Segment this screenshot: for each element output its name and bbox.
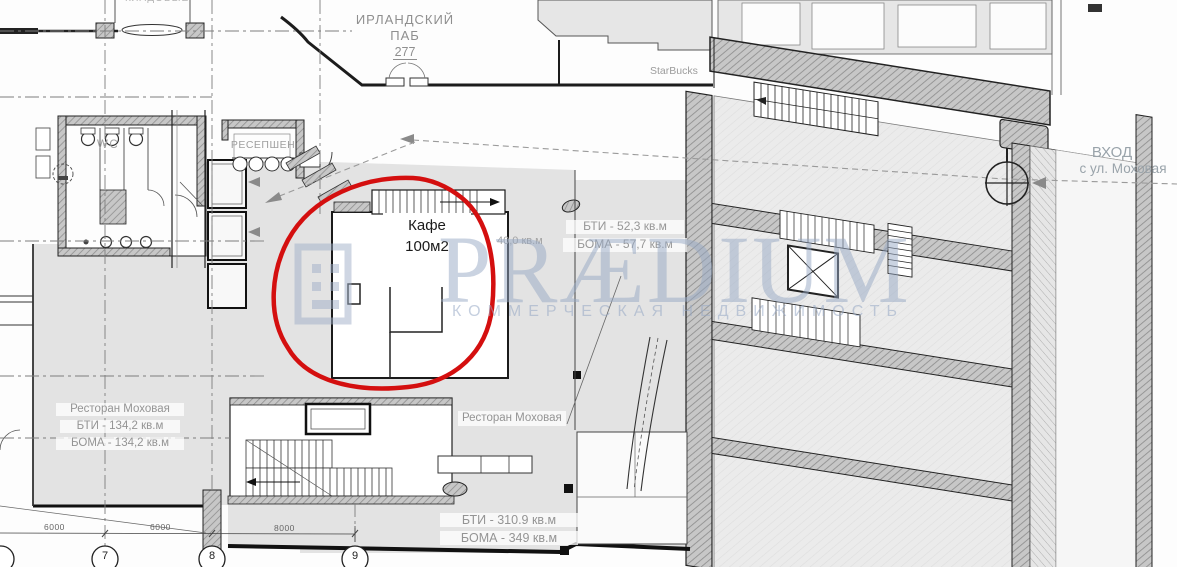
bar-counter: [438, 456, 532, 473]
wc-block: [36, 116, 206, 256]
grid-bubble-9: 9: [348, 550, 362, 563]
direction-arrow-icon: [400, 134, 414, 144]
dimension-6000-a: 6000: [44, 523, 65, 533]
elevator-icon: [208, 264, 246, 308]
wc-label: WC: [97, 139, 119, 152]
restaurant-zone-left: [33, 244, 205, 506]
reception-label: РЕСЕПШЕН: [226, 139, 300, 151]
restaurant-left-boma: БОМА - 134,2 кв.м: [56, 437, 184, 450]
left-edge-rooms: [0, 244, 33, 506]
irish-pub-number: 277: [338, 45, 472, 59]
top-left-walls: [0, 0, 204, 38]
truncated-top-label: КЛАДОВЫЕ: [125, 0, 189, 5]
irish-pub-label-line2: ПАБ: [338, 29, 472, 44]
grid-bubble-8: 8: [205, 550, 219, 563]
dimension-6000-b: 6000: [150, 523, 171, 533]
watermark-tagline: КОММЕРЧЕСКАЯ НЕДВИЖИМОСТЬ: [452, 303, 904, 321]
entrance-label-line2: с ул. Моховая: [1056, 161, 1177, 177]
stair-block: [228, 398, 454, 504]
restaurant-left-name: Ресторан Моховая: [56, 403, 184, 416]
floor-plan: КЛАДОВЫЕ ИРЛАНДСКИЙ ПАБ 277 StarBucks WC…: [0, 0, 1177, 567]
irish-pub-label-line1: ИРЛАНДСКИЙ: [338, 13, 472, 28]
door-leaf: [122, 25, 182, 36]
restaurant-center-boma: БОМА - 349 кв.м: [440, 531, 578, 545]
window-strip: [1030, 146, 1056, 567]
restaurant-left-bti: БТИ - 134,2 кв.м: [60, 420, 180, 433]
grid-bubble-7: 7: [98, 550, 112, 563]
elevator-icon: [208, 212, 246, 260]
starbucks-label: StarBucks: [650, 65, 698, 77]
entrance-label-line1: ВХОД: [1062, 144, 1162, 161]
dimension-8000: 8000: [274, 524, 295, 534]
door-arc: [0, 430, 20, 450]
restaurant-center-name: Ресторан Моховая: [458, 411, 566, 426]
restaurant-center-bti: БТИ - 310.9 кв.м: [440, 513, 578, 527]
